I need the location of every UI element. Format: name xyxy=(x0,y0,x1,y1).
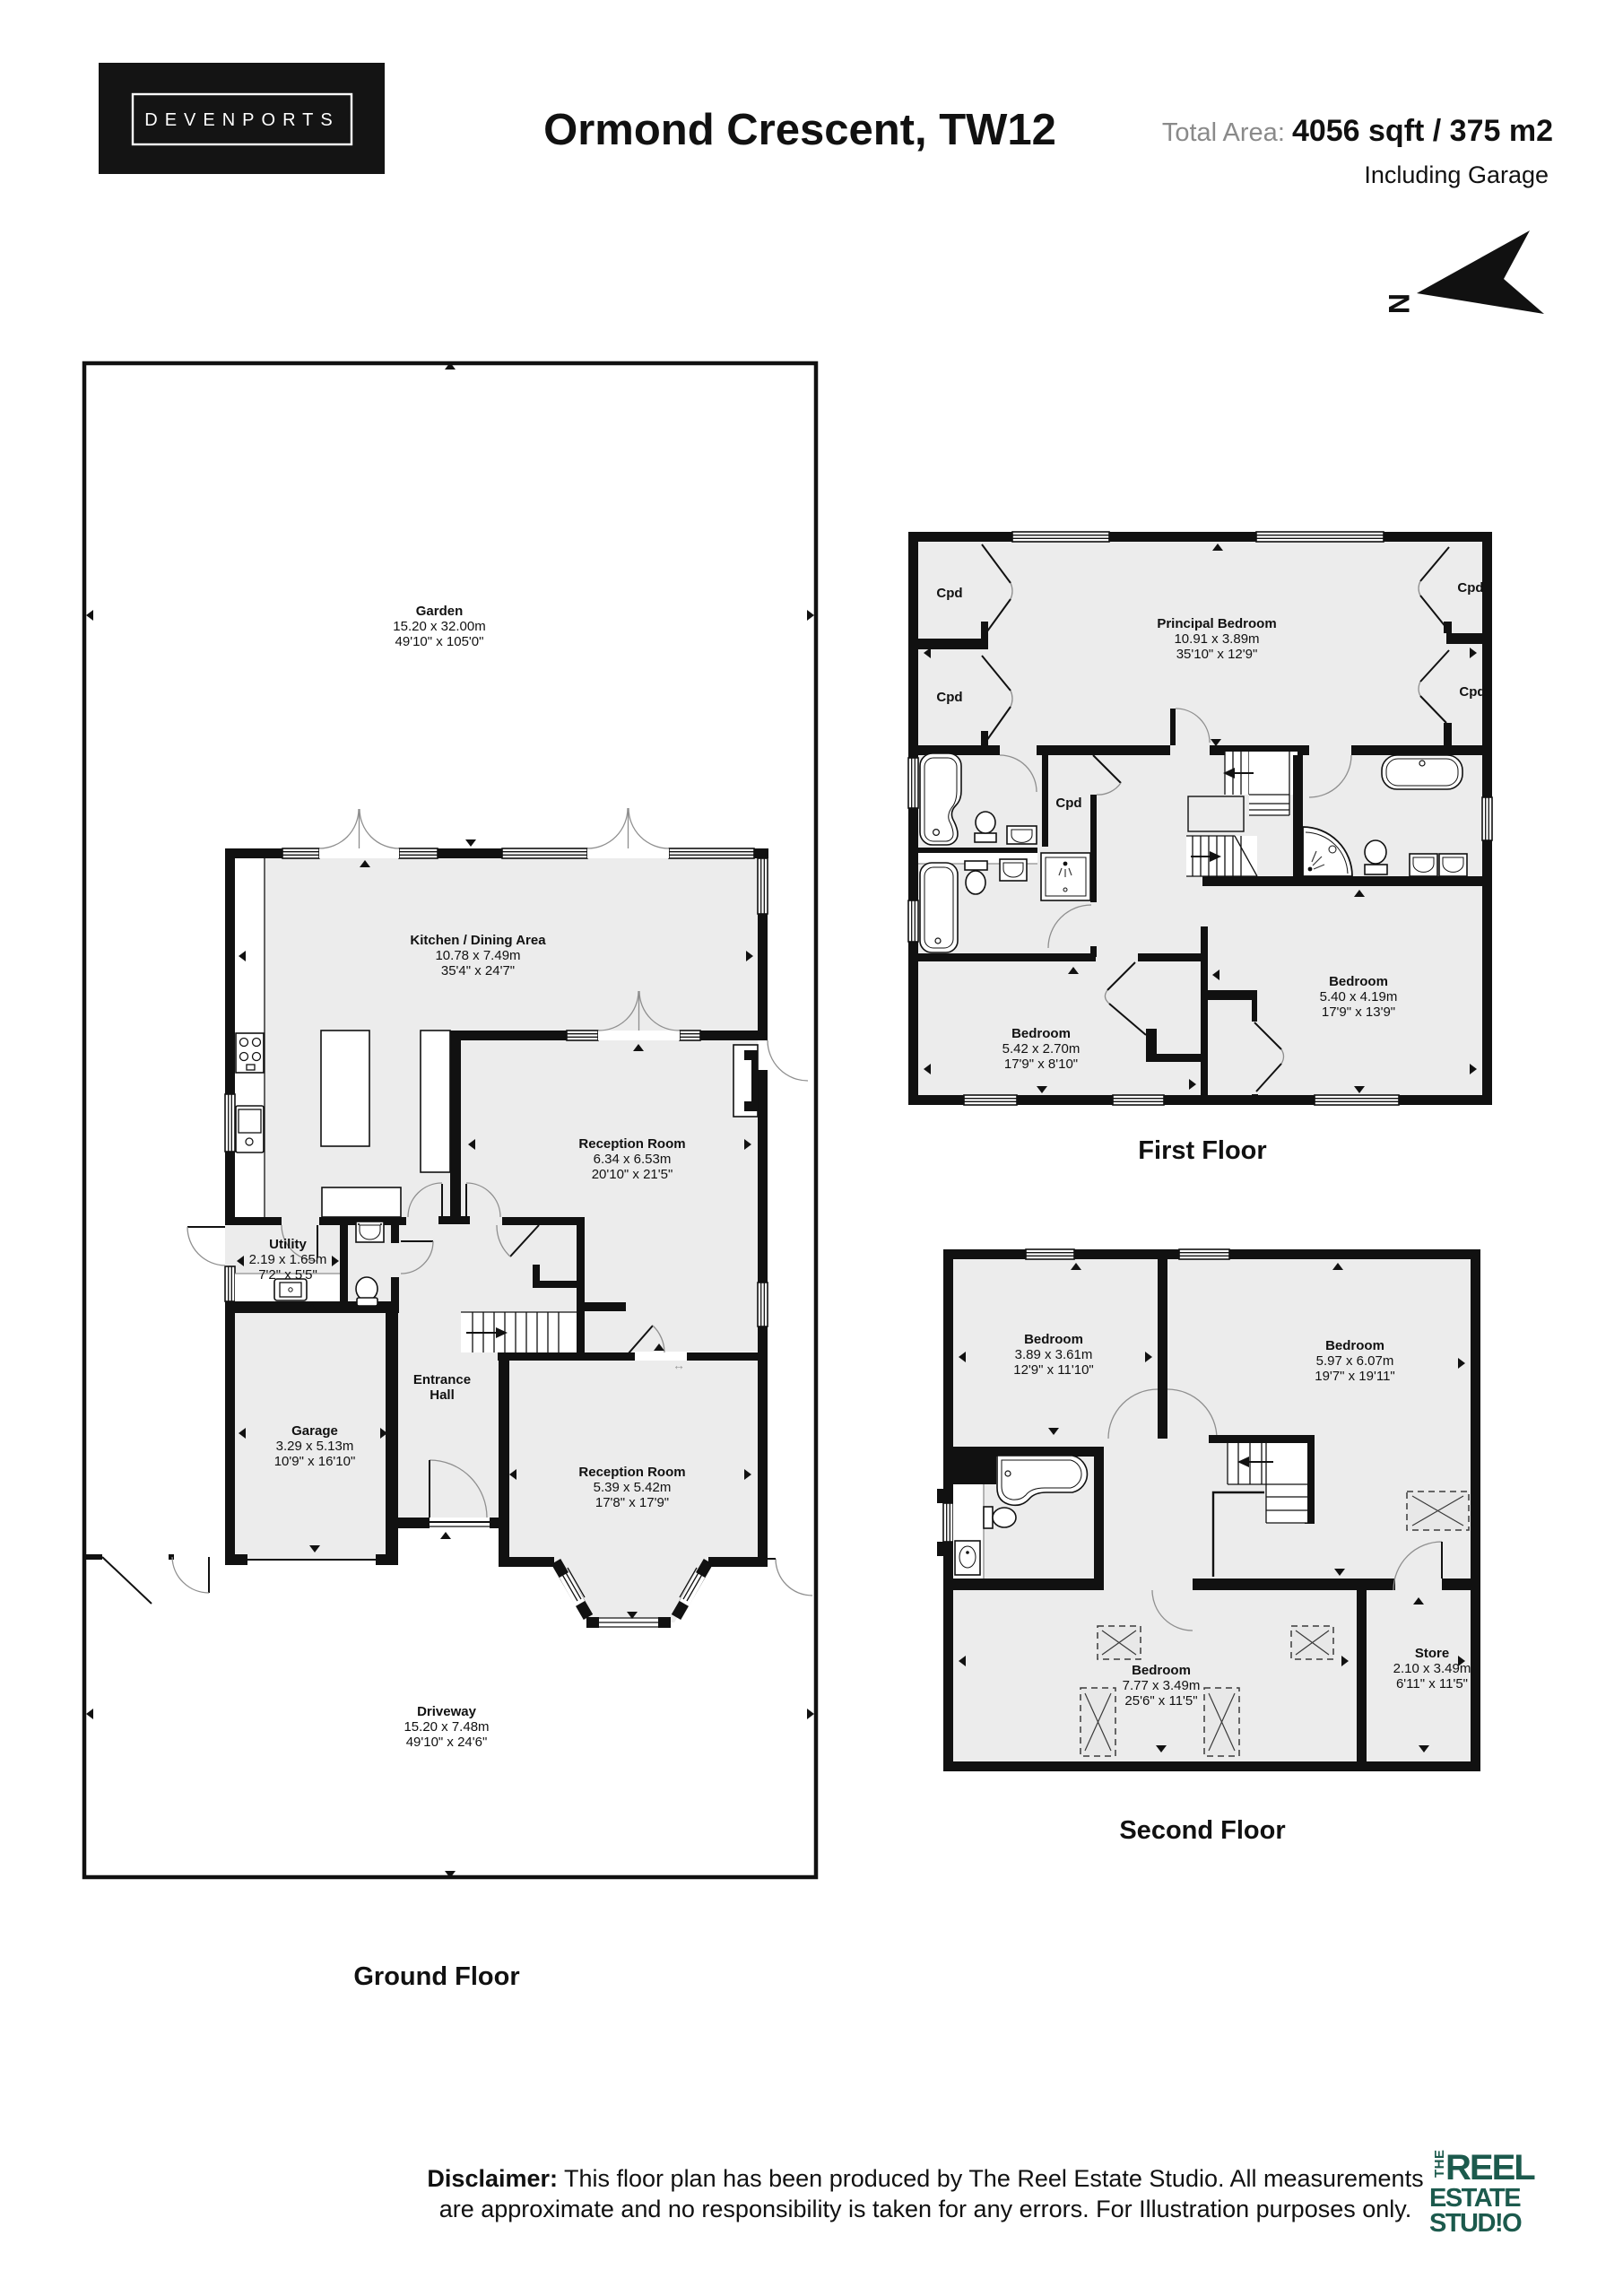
svg-text:Driveway: Driveway xyxy=(417,1704,477,1719)
svg-text:3.29 x 5.13m: 3.29 x 5.13m xyxy=(276,1439,354,1454)
svg-text:20'10" x 21'5": 20'10" x 21'5" xyxy=(592,1167,673,1182)
svg-text:49'10" x 24'6": 49'10" x 24'6" xyxy=(406,1735,488,1750)
svg-text:19'7" x 19'11": 19'7" x 19'11" xyxy=(1315,1369,1395,1384)
svg-text:5.40 x 4.19m: 5.40 x 4.19m xyxy=(1320,989,1398,1004)
svg-text:Bedroom: Bedroom xyxy=(1011,1026,1071,1041)
svg-text:Bedroom: Bedroom xyxy=(1132,1663,1191,1678)
svg-text:5.42 x 2.70m: 5.42 x 2.70m xyxy=(1002,1041,1081,1057)
svg-text:Cpd: Cpd xyxy=(1459,684,1485,700)
svg-text:Store: Store xyxy=(1415,1646,1449,1661)
svg-text:10.78 x 7.49m: 10.78 x 7.49m xyxy=(435,948,520,963)
svg-text:7'2" x 5'5": 7'2" x 5'5" xyxy=(258,1267,317,1283)
svg-text:7.77 x 3.49m: 7.77 x 3.49m xyxy=(1123,1678,1201,1693)
svg-text:N: N xyxy=(1383,293,1415,314)
svg-text:DEVENPORTS: DEVENPORTS xyxy=(144,110,339,130)
svg-text:17'8" x 17'9": 17'8" x 17'9" xyxy=(595,1495,669,1510)
svg-text:Total Area: 4056 sqft / 375 m2: Total Area: 4056 sqft / 375 m2 xyxy=(1162,114,1553,148)
svg-text:First Floor: First Floor xyxy=(1138,1136,1266,1165)
svg-text:↔: ↔ xyxy=(673,1358,685,1372)
svg-text:35'4" x 24'7": 35'4" x 24'7" xyxy=(441,963,515,978)
svg-text:Ground Floor: Ground Floor xyxy=(353,1962,519,1991)
svg-text:35'10" x 12'9": 35'10" x 12'9" xyxy=(1176,647,1258,662)
svg-text:10'9" x 16'10": 10'9" x 16'10" xyxy=(274,1454,356,1469)
svg-text:25'6" x 11'5": 25'6" x 11'5" xyxy=(1124,1693,1197,1709)
svg-text:12'9" x 11'10": 12'9" x 11'10" xyxy=(1013,1362,1094,1378)
svg-text:Entrance: Entrance xyxy=(413,1372,471,1387)
svg-text:49'10" x 105'0": 49'10" x 105'0" xyxy=(395,634,484,649)
svg-text:Bedroom: Bedroom xyxy=(1024,1332,1083,1347)
svg-text:15.20 x 7.48m: 15.20 x 7.48m xyxy=(404,1719,489,1735)
svg-text:3.89 x 3.61m: 3.89 x 3.61m xyxy=(1015,1347,1093,1362)
svg-text:Ormond Crescent, TW12: Ormond Crescent, TW12 xyxy=(543,106,1056,154)
svg-text:Cpd: Cpd xyxy=(1457,580,1483,596)
svg-text:17'9" x 8'10": 17'9" x 8'10" xyxy=(1004,1057,1078,1072)
svg-text:Cpd: Cpd xyxy=(936,690,962,705)
svg-text:Bedroom: Bedroom xyxy=(1325,1338,1384,1353)
svg-text:Garden: Garden xyxy=(416,604,464,619)
svg-text:Including Garage: Including Garage xyxy=(1364,161,1549,188)
svg-text:10.91 x 3.89m: 10.91 x 3.89m xyxy=(1174,631,1259,647)
svg-text:17'9" x 13'9": 17'9" x 13'9" xyxy=(1322,1004,1395,1020)
svg-text:Cpd: Cpd xyxy=(1055,796,1081,811)
svg-text:are approximate and no respons: are approximate and no responsibility is… xyxy=(439,2196,1412,2222)
svg-text:REEL: REEL xyxy=(1445,2148,1535,2187)
svg-text:2.19 x 1.65m: 2.19 x 1.65m xyxy=(249,1252,327,1267)
svg-text:Hall: Hall xyxy=(430,1387,455,1403)
svg-text:Utility: Utility xyxy=(269,1237,307,1252)
svg-text:Bedroom: Bedroom xyxy=(1329,974,1388,989)
svg-text:5.97 x 6.07m: 5.97 x 6.07m xyxy=(1316,1353,1394,1369)
svg-text:6'11" x 11'5": 6'11" x 11'5" xyxy=(1396,1676,1468,1692)
svg-text:Cpd: Cpd xyxy=(936,586,962,601)
svg-text:Principal Bedroom: Principal Bedroom xyxy=(1157,616,1276,631)
svg-text:Kitchen / Dining Area: Kitchen / Dining Area xyxy=(410,933,546,948)
svg-text:Disclaimer: This floor plan ha: Disclaimer: This floor plan has been pro… xyxy=(427,2165,1423,2192)
svg-text:15.20 x 32.00m: 15.20 x 32.00m xyxy=(393,619,485,634)
svg-text:6.34 x 6.53m: 6.34 x 6.53m xyxy=(594,1152,672,1167)
svg-text:Reception Room: Reception Room xyxy=(578,1136,685,1152)
svg-text:Second Floor: Second Floor xyxy=(1119,1816,1285,1845)
svg-text:Reception Room: Reception Room xyxy=(578,1465,685,1480)
svg-text:Garage: Garage xyxy=(291,1423,338,1439)
svg-text:STUD!O: STUD!O xyxy=(1429,2209,1522,2238)
svg-text:5.39 x 5.42m: 5.39 x 5.42m xyxy=(594,1480,672,1495)
